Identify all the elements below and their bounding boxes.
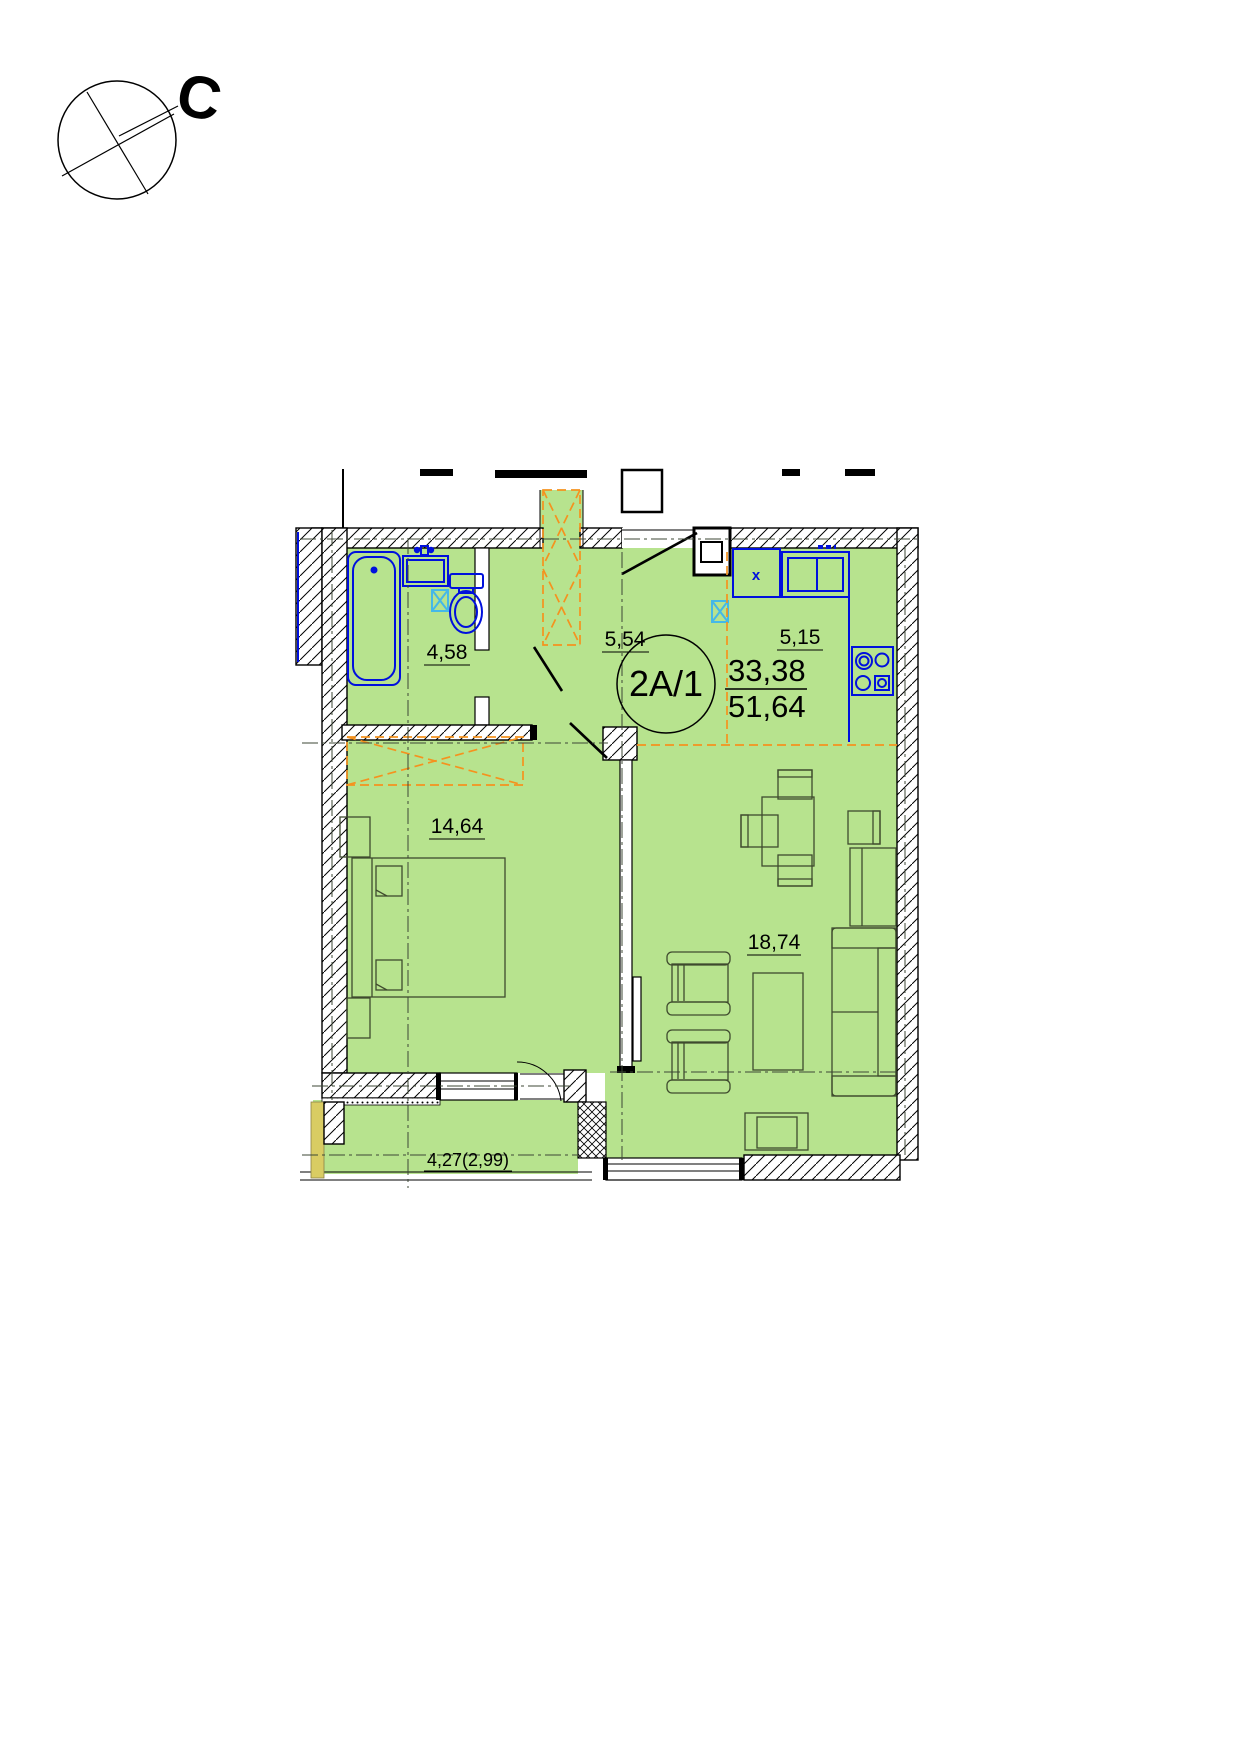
- unit-code-label: 2А/1: [629, 663, 703, 704]
- balcony-area-label: 4,27(2,99): [427, 1150, 509, 1170]
- compass-needle-double-line: [119, 106, 178, 136]
- balcony-left-wall-hatch: [324, 1102, 344, 1144]
- corridor-shaft-stub: [622, 470, 662, 512]
- hallway-area-label: 5,54: [605, 628, 646, 651]
- floorplan-canvas: С: [0, 0, 1241, 1754]
- compass: С: [58, 60, 227, 199]
- left-wall: [322, 528, 347, 1073]
- top-wall-middle: [580, 528, 622, 548]
- living-area-total-label: 33,38: [728, 653, 806, 688]
- compass-needle-line: [62, 114, 174, 176]
- living-bottom-wall: [744, 1155, 900, 1180]
- kitchen-sink-marker: x: [752, 567, 761, 584]
- floorplan-svg: С: [0, 0, 1241, 1754]
- faucet-handle-icon: [414, 547, 420, 553]
- compass-cross-line: [87, 92, 148, 194]
- niche-top-bar: [495, 470, 587, 478]
- compass-circle: [58, 81, 176, 199]
- left-outer-wall: [296, 528, 322, 665]
- bedroom-door-leaf-open: [633, 977, 641, 1061]
- wall-stub-1: [420, 469, 453, 476]
- bathroom-partition-lower: [475, 697, 489, 725]
- total-area-label: 51,64: [728, 689, 806, 724]
- kitchen-area-label: 5,15: [780, 626, 821, 649]
- north-letter: С: [171, 60, 227, 135]
- wall-stub-2: [782, 469, 800, 476]
- balcony-living-wall: [578, 1102, 606, 1158]
- balcony-left-wall-yellow: [311, 1102, 324, 1178]
- wall-stub-3: [845, 469, 875, 476]
- window-cap-3: [603, 1158, 608, 1180]
- entrance-opening: [622, 528, 695, 548]
- junction-pillar: [603, 727, 637, 760]
- wall-end-cap-1: [530, 725, 537, 740]
- living-room-lower-fill: [605, 1073, 897, 1160]
- living-room-area-label: 18,74: [748, 931, 801, 954]
- window-cap-4: [739, 1158, 744, 1180]
- living-room-window: [606, 1158, 742, 1180]
- vent-shaft-duct: [701, 542, 722, 562]
- bathroom-area-label: 4,58: [427, 641, 468, 664]
- right-wall: [897, 528, 918, 1160]
- bedroom-area-label: 14,64: [431, 815, 484, 838]
- bathroom-partition-upper: [475, 548, 489, 650]
